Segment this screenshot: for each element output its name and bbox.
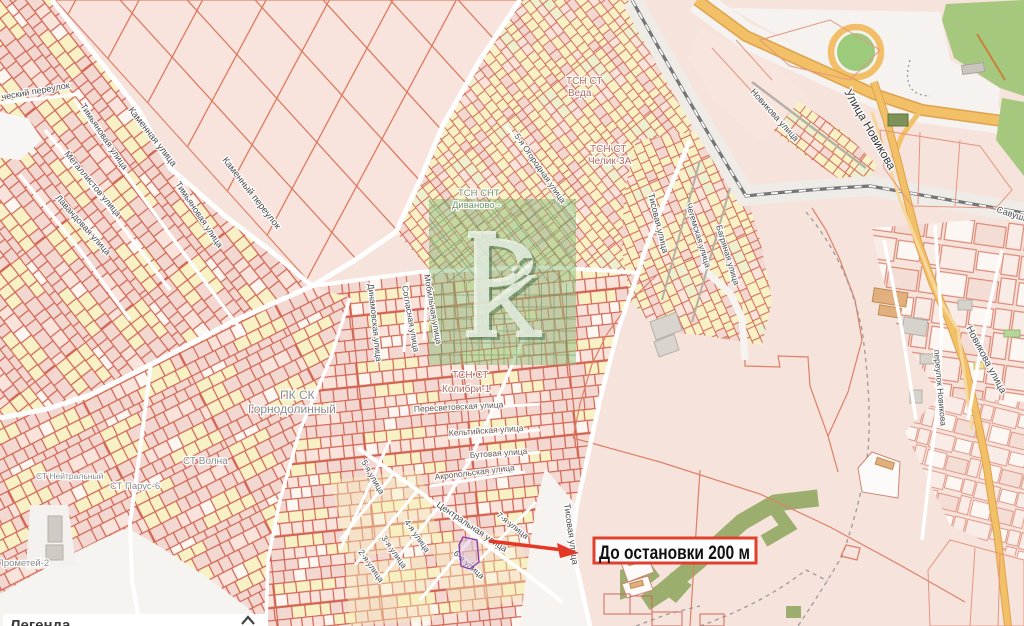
svg-text:Диваново -: Диваново - (452, 200, 501, 211)
svg-text:Веда: Веда (568, 88, 592, 99)
svg-text:Колибри-1: Колибри-1 (442, 383, 491, 395)
svg-text:СТ Парус-6: СТ Парус-6 (110, 481, 160, 492)
svg-text:Челик-3А: Челик-3А (588, 156, 632, 167)
svg-text:ТСН СТ: ТСН СТ (590, 144, 626, 155)
svg-text:ТСН СТ: ТСН СТ (566, 76, 602, 87)
svg-text:ТСН СНТ: ТСН СНТ (458, 188, 500, 199)
svg-text:ПК СК: ПК СК (280, 388, 315, 402)
svg-text:СТ Волна: СТ Волна (183, 456, 228, 467)
svg-text:Горнодолинный: Горнодолинный (248, 402, 336, 416)
svg-text:СТ Нейтральный: СТ Нейтральный (36, 471, 104, 481)
svg-text:ТСН СТ: ТСН СТ (452, 370, 488, 381)
svg-text:Легенда: Легенда (10, 617, 71, 626)
svg-text:До остановки 200 м: До остановки 200 м (599, 543, 750, 564)
svg-text:СТ Прометей-2: СТ Прометей-2 (0, 558, 49, 569)
